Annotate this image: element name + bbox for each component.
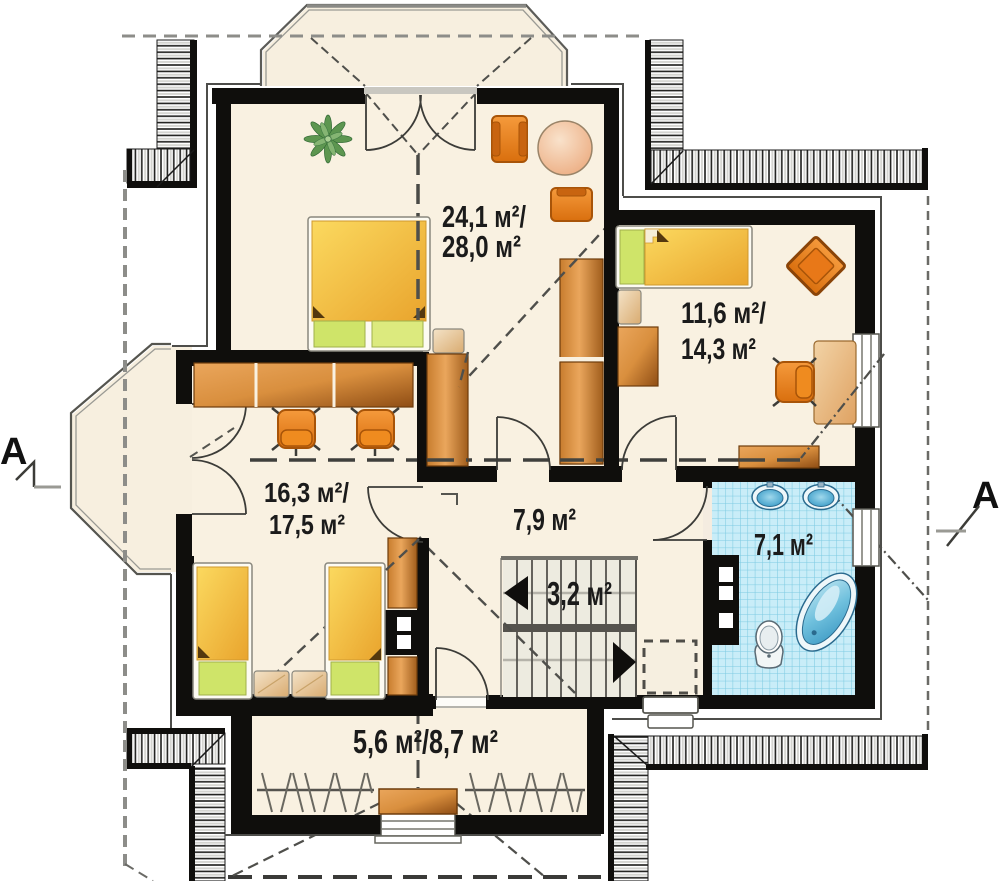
- svg-text:17,5 м²: 17,5 м²: [269, 509, 345, 540]
- svg-text:A: A: [0, 431, 27, 473]
- svg-text:7,9 м²: 7,9 м²: [513, 502, 576, 537]
- svg-text:16,3 м²/: 16,3 м²/: [264, 477, 349, 508]
- svg-text:11,6 м²/: 11,6 м²/: [681, 297, 767, 330]
- svg-text:14,3 м²: 14,3 м²: [681, 333, 756, 366]
- svg-text:5,6 м²/8,7 м²: 5,6 м²/8,7 м²: [353, 723, 498, 760]
- svg-text:28,0 м²: 28,0 м²: [442, 229, 521, 264]
- svg-text:7,1 м²: 7,1 м²: [754, 527, 813, 562]
- svg-text:3,2 м²: 3,2 м²: [547, 575, 612, 612]
